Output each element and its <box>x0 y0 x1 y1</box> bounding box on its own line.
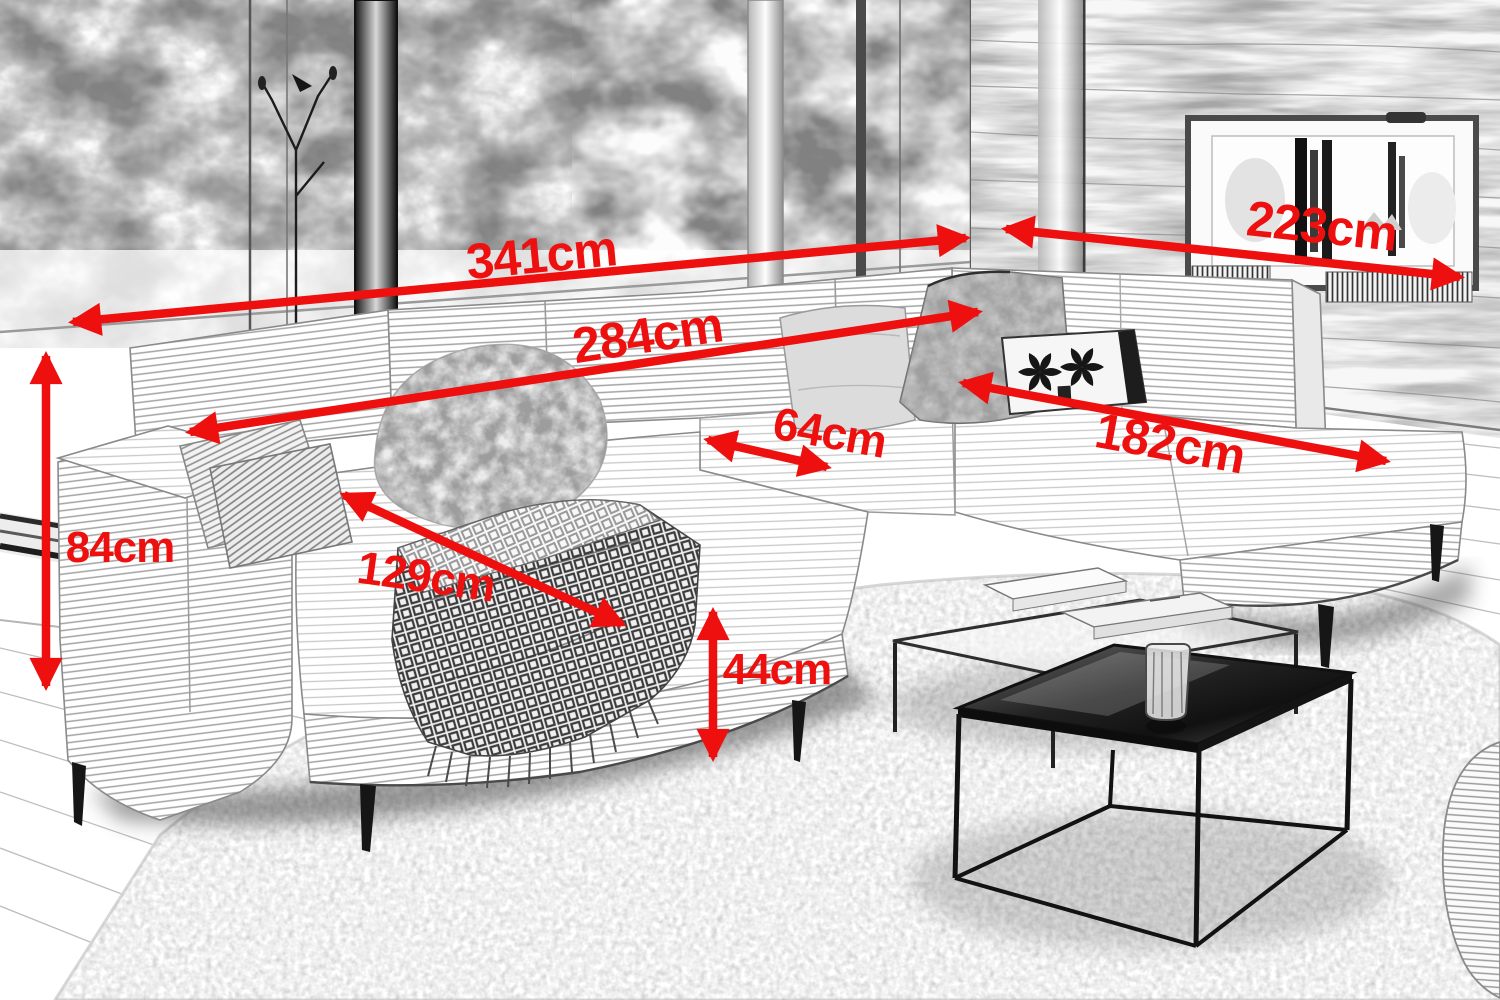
sofa-dimension-sketch: 341cm 223cm 284cm 64cm 182cm 84cm 129cm … <box>0 0 1500 1000</box>
picture-light-icon <box>1386 112 1426 123</box>
sofa-leg <box>72 762 86 826</box>
height-label: 84cm <box>66 523 175 572</box>
seat-height-label: 44cm <box>723 645 832 694</box>
table-leg <box>1196 750 1199 946</box>
right-armrest-side <box>1292 280 1326 446</box>
scene: 341cm 223cm 284cm 64cm 182cm 84cm 129cm … <box>0 0 1500 1000</box>
